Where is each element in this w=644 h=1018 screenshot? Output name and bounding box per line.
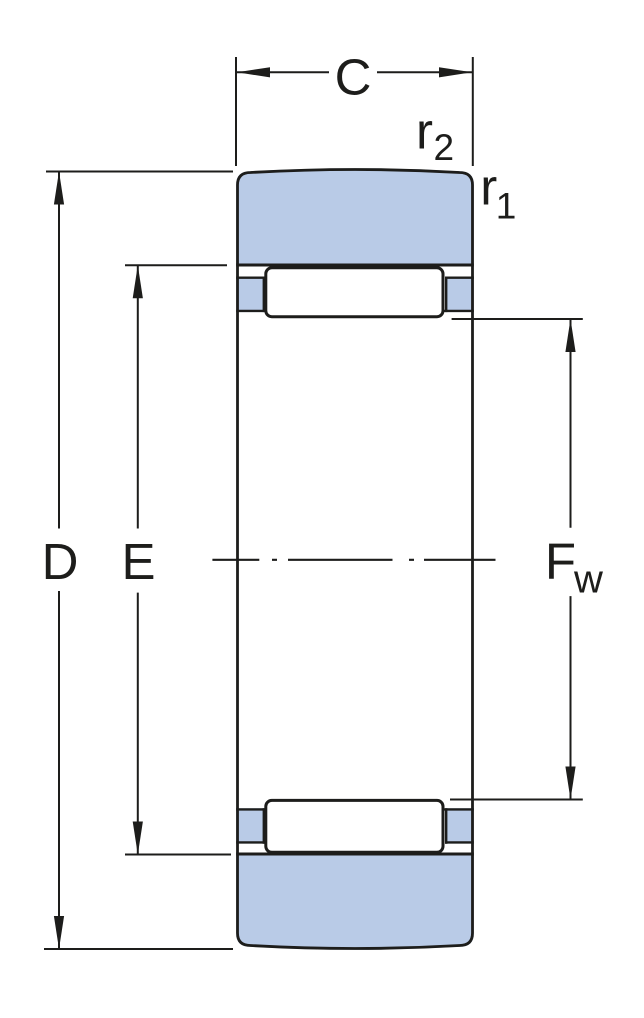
svg-text:r: r — [416, 103, 433, 160]
svg-text:D: D — [42, 533, 79, 590]
svg-text:E: E — [121, 533, 155, 590]
svg-text:w: w — [573, 558, 603, 602]
svg-text:1: 1 — [496, 186, 517, 227]
svg-text:C: C — [335, 49, 372, 106]
svg-text:2: 2 — [434, 127, 455, 168]
svg-text:F: F — [545, 533, 576, 590]
